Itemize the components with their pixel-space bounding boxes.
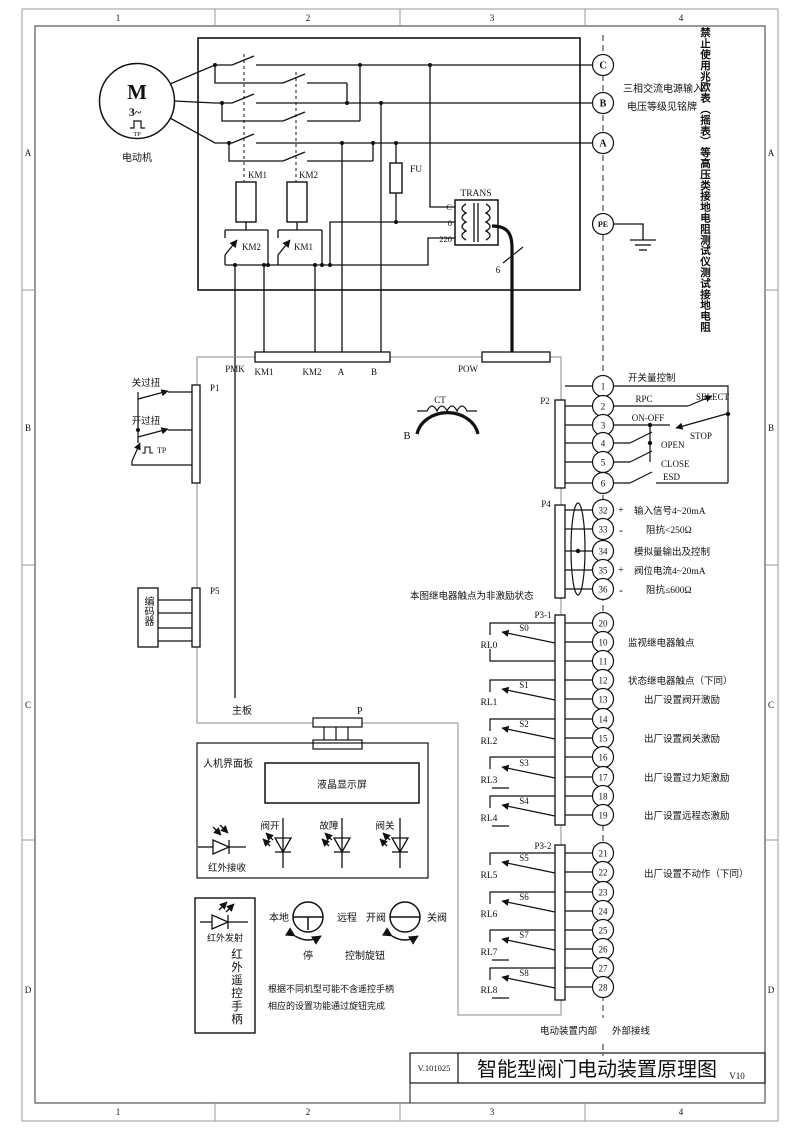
rl2-label: RL2 <box>481 737 498 747</box>
schematic-page: 1 2 3 4 1 2 3 4 A B C D A B C D M 3~ TP … <box>0 0 800 1131</box>
local-label: 本地 <box>269 911 289 924</box>
rpc-label: RPC <box>635 394 652 404</box>
term-1: 1 <box>601 382 606 392</box>
p-label: P <box>357 706 363 717</box>
pmk-label: PMK <box>225 364 245 374</box>
version-label: V10 <box>729 1071 745 1081</box>
pow-connector <box>482 352 550 362</box>
s7-label: S7 <box>519 930 529 940</box>
rl0-label: RL0 <box>481 641 498 651</box>
desc-open: 出厂设置阀开激励 <box>644 694 720 706</box>
trans-tap-220: 220 <box>439 234 452 244</box>
mainboard-label: 主板 <box>232 704 252 717</box>
switch-control-title: 开关量控制 <box>628 372 676 384</box>
ir-handle-label: 红外遥控手柄 <box>228 948 244 1026</box>
term-34: 34 <box>599 547 609 557</box>
km1-interlock-label: KM2 <box>242 242 261 252</box>
ct-phase-label: B <box>403 431 410 442</box>
rl6-label: RL6 <box>481 910 498 920</box>
col-label: 3 <box>490 13 495 23</box>
ir-transmit-label: 红外发射 <box>207 932 243 943</box>
doc-number: V.101025 <box>418 1063 451 1073</box>
transformer-icon <box>455 200 498 245</box>
motor-m: M <box>127 80 147 104</box>
p5-label: P5 <box>210 586 220 596</box>
sign-minus: - <box>619 583 623 597</box>
supply-note-1: 三相交流电源输入 <box>623 82 703 95</box>
row-label: D <box>25 985 32 995</box>
motor-tp: TP <box>133 131 141 138</box>
analog-l2: 阻抗<250Ω <box>646 524 692 536</box>
supply-note-2: 电压等级见铭牌 <box>627 100 697 113</box>
row-label: B <box>768 423 774 433</box>
external-label: 外部接线 <box>612 1025 651 1037</box>
ir-handle-box <box>195 898 255 1033</box>
desc-torque: 出厂设置过力矩激励 <box>644 772 730 784</box>
term-27: 27 <box>599 964 609 974</box>
rl5-label: RL5 <box>481 871 498 881</box>
s2-label: S2 <box>519 719 529 729</box>
trans-tap-c: C <box>446 202 452 212</box>
analog-l4: 阀位电流4~20mA <box>634 565 706 577</box>
transformer-label: TRANS <box>460 189 491 199</box>
s3-label: S3 <box>519 758 529 768</box>
close-valve-label: 关阀 <box>427 911 447 924</box>
s6-label: S6 <box>519 892 529 902</box>
pmk-a: A <box>338 367 345 377</box>
led-open-label: 阀开 <box>260 820 280 832</box>
s4-label: S4 <box>519 796 529 806</box>
p1-label: P1 <box>210 383 220 393</box>
term-4: 4 <box>601 439 606 449</box>
power-enclosure-box <box>198 38 580 290</box>
term-10: 10 <box>599 638 609 648</box>
close-torque-label: 关过扭 <box>132 377 161 389</box>
km2-coil-label: KM2 <box>299 170 318 180</box>
row-label: C <box>768 700 774 710</box>
terminal-a: A <box>599 139 607 150</box>
s1-label: S1 <box>519 680 529 690</box>
col-label: 2 <box>306 13 311 23</box>
p31-connector <box>555 615 565 825</box>
term-33: 33 <box>599 525 609 535</box>
s8-label: S8 <box>519 968 529 978</box>
fuse-label: FU <box>410 165 422 175</box>
mode-knob <box>293 902 323 940</box>
term-17: 17 <box>599 773 609 783</box>
knob-label: 控制旋钮 <box>345 949 385 962</box>
term-26: 26 <box>599 945 609 955</box>
row-label: B <box>25 423 31 433</box>
p4-label: P4 <box>541 499 551 509</box>
col-label: 2 <box>306 1107 311 1117</box>
rl8-label: RL8 <box>481 986 498 996</box>
km2-coil <box>287 182 307 222</box>
term-23: 23 <box>599 888 609 898</box>
desc-monitor: 监视继电器触点 <box>628 637 695 649</box>
onoff-label: ON-OFF <box>632 413 665 423</box>
term-19: 19 <box>599 811 609 821</box>
stop-knob-label: 停 <box>303 949 313 962</box>
rl1-label: RL1 <box>481 698 498 708</box>
term-13: 13 <box>599 695 609 705</box>
col-label: 3 <box>490 1107 495 1117</box>
p31-label: P3-1 <box>534 610 551 620</box>
rl4-label: RL4 <box>481 814 498 824</box>
analog-l1: 输入信号4~20mA <box>634 505 706 517</box>
term-11: 11 <box>599 657 608 667</box>
p2-label: P2 <box>540 396 550 406</box>
col-label: 1 <box>116 1107 121 1117</box>
led-fault-label: 故障 <box>319 820 339 832</box>
term-18: 18 <box>599 792 609 802</box>
esd-label: ESD <box>663 472 681 482</box>
p4-connector <box>555 505 565 598</box>
hmi-panel-label: 人机界面板 <box>203 757 253 770</box>
col-label: 4 <box>679 1107 684 1117</box>
stop-label: STOP <box>690 431 712 441</box>
remote-label: 远程 <box>337 912 357 924</box>
high-voltage-warning: 禁止使用兆欧表（摇表）等高压类接地电阻测试仪测试接地电阻 <box>697 27 712 332</box>
relay-wiring-p32 <box>490 853 593 998</box>
p32-connector <box>555 845 565 1000</box>
rl7-label: RL7 <box>481 948 498 958</box>
open-valve-label: 开阀 <box>366 911 386 924</box>
km1-coil-label: KM1 <box>248 170 267 180</box>
term-28: 28 <box>599 983 609 993</box>
col-label: 4 <box>679 13 684 23</box>
terminal-b: B <box>600 99 607 110</box>
open-torque-label: 开过扭 <box>132 415 161 427</box>
ct-label: CT <box>434 395 446 405</box>
rl3-label: RL3 <box>481 776 498 786</box>
row-label: C <box>25 700 31 710</box>
analog-l5: 阻抗≤600Ω <box>646 584 692 596</box>
led-close-label: 阀关 <box>375 820 395 832</box>
term-14: 14 <box>599 715 609 725</box>
wire-count: 6 <box>496 265 501 275</box>
pmk-connector <box>255 352 390 362</box>
trans-tap-0: 0 <box>448 218 452 228</box>
p2-connector <box>555 400 565 488</box>
motor-label: 电动机 <box>122 151 152 164</box>
pmk-km1: KM1 <box>254 367 273 377</box>
desc-status: 状态继电器触点（下同） <box>628 675 733 687</box>
sign-plus: + <box>618 505 624 516</box>
col-label: 1 <box>116 13 121 23</box>
p-connector <box>313 718 362 749</box>
term-24: 24 <box>599 907 609 917</box>
desc-close: 出厂设置阀关激励 <box>644 733 720 745</box>
term-21: 21 <box>599 849 608 859</box>
hmi-note-2: 相应的设置功能通过旋钮完成 <box>268 1000 385 1011</box>
term-36: 36 <box>599 585 609 595</box>
sign-minus: - <box>619 523 623 537</box>
pow-label: POW <box>458 364 479 374</box>
analog-l3: 模拟量输出及控制 <box>634 546 710 558</box>
contactor-links <box>244 54 296 182</box>
desc-remote: 出厂设置远程态激励 <box>644 810 730 822</box>
term-15: 15 <box>599 734 609 744</box>
term-16: 16 <box>599 753 609 763</box>
term-5: 5 <box>601 458 606 468</box>
hmi-note-1: 根据不同机型可能不含遥控手柄 <box>268 983 394 994</box>
close-label: CLOSE <box>661 459 690 469</box>
sign-plus: + <box>618 565 624 576</box>
s0-label: S0 <box>519 623 529 633</box>
select-label: SELECT <box>696 392 730 402</box>
term-35: 35 <box>599 566 609 576</box>
row-label: D <box>768 985 775 995</box>
s5-label: S5 <box>519 853 529 863</box>
open-label: OPEN <box>661 440 685 450</box>
encoder-label: 编码器 <box>140 596 155 626</box>
relay-state-note: 本图继电器触点为非激励状态 <box>410 590 534 602</box>
motor-phase: 3~ <box>129 105 142 119</box>
p5-connector <box>192 588 200 647</box>
term-20: 20 <box>599 619 609 629</box>
terminal-circles: 1 2 3 4 5 6 32 33 34 35 36 20 10 11 12 1… <box>593 376 614 998</box>
relay-wiring-p31 <box>490 623 593 826</box>
ir-transmit-icon <box>200 902 248 929</box>
term-25: 25 <box>599 926 609 936</box>
desc-noact: 出厂设置不动作（下同） <box>644 868 749 880</box>
tp-label: TP <box>157 446 167 455</box>
term-22: 22 <box>599 868 608 878</box>
fuse-icon <box>390 163 402 193</box>
ground-icon <box>614 224 657 250</box>
terminal-c: C <box>599 61 606 72</box>
km1-coil <box>236 182 256 222</box>
km2-interlock-label: KM1 <box>294 242 313 252</box>
encoder-wires <box>158 600 192 641</box>
term-32: 32 <box>599 506 608 516</box>
term-2: 2 <box>601 402 606 412</box>
drawing-title: 智能型阀门电动装置原理图 <box>477 1058 717 1081</box>
terminal-pe: PE <box>598 220 608 229</box>
ir-receive-label: 红外接收 <box>208 862 247 874</box>
row-label: A <box>25 148 32 158</box>
pmk-b: B <box>371 367 377 377</box>
internal-label: 电动装置内部 <box>540 1025 597 1037</box>
pmk-km2: KM2 <box>302 367 321 377</box>
p1-connector <box>192 385 200 483</box>
valve-knob <box>390 902 420 940</box>
schematic-canvas: 1 2 3 4 1 2 3 4 A B C D A B C D M 3~ TP … <box>0 0 800 1131</box>
term-12: 12 <box>599 676 608 686</box>
lcd-label: 液晶显示屏 <box>317 778 367 791</box>
current-transformer-icon <box>417 406 478 434</box>
p32-label: P3-2 <box>534 841 551 851</box>
term-6: 6 <box>601 479 606 489</box>
row-label: A <box>768 148 775 158</box>
ir-receiver-icon <box>198 825 246 854</box>
term-3: 3 <box>601 421 606 431</box>
junction-dots <box>136 63 730 553</box>
